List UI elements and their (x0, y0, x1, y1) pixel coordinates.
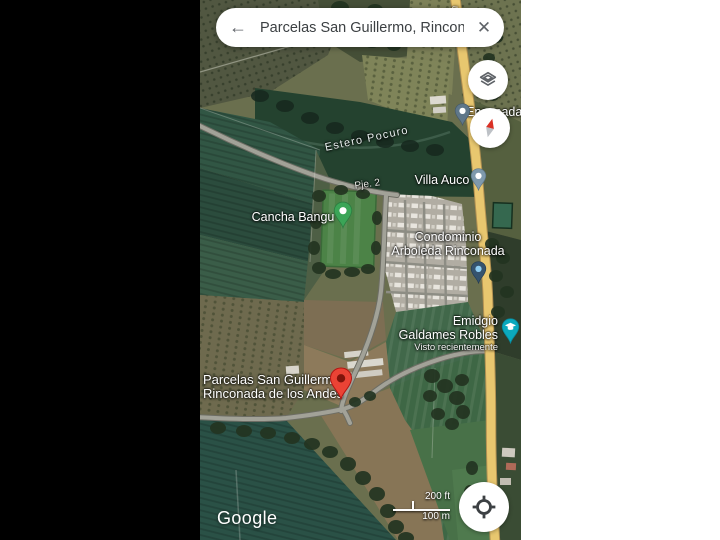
ensenada-pin[interactable] (454, 103, 471, 131)
map-label-condominio[interactable]: Condominio Arboleda Rinconada (388, 231, 508, 258)
search-query[interactable]: Parcelas San Guillermo, Rincon... (260, 20, 464, 36)
screen: Estero Pocuro Pje. 2 tín Villa Auco Canc… (0, 0, 720, 540)
destination-pin[interactable] (329, 367, 353, 405)
map-label-emidgio[interactable]: Emidgio Galdames Robles Visto recienteme… (388, 315, 498, 353)
map-viewport[interactable]: Estero Pocuro Pje. 2 tín Villa Auco Canc… (200, 0, 521, 540)
destination-line2: Rinconada de los Andes (203, 387, 327, 401)
map-label-destination[interactable]: Parcelas San Guillermo, Rinconada de los… (203, 373, 327, 401)
school-pin[interactable] (501, 318, 520, 349)
scale-imperial: 200 ft (425, 491, 450, 502)
condominio-line1: Condominio (388, 231, 508, 245)
condominio-saved-pin[interactable] (470, 261, 487, 289)
cancha-bangu-pin[interactable] (333, 201, 353, 234)
map-label-villa-auco[interactable]: Villa Auco (413, 174, 471, 188)
my-location-button[interactable] (459, 482, 509, 532)
villa-auco-pin[interactable] (470, 168, 487, 196)
compass-icon (478, 116, 502, 140)
destination-line1: Parcelas San Guillermo, (203, 373, 327, 387)
scale-bar: 200 ft 100 m (390, 491, 454, 527)
emidgio-line2: Galdames Robles (388, 329, 498, 343)
back-icon[interactable]: ← (216, 17, 260, 38)
letterbox-right (521, 0, 720, 540)
close-icon[interactable]: ✕ (464, 18, 504, 38)
compass-button[interactable] (470, 108, 510, 148)
my-location-icon (471, 494, 497, 520)
emidgio-note: Visto recientemente (388, 343, 498, 353)
layers-icon (477, 69, 499, 91)
search-bar[interactable]: ← Parcelas San Guillermo, Rincon... ✕ (216, 8, 504, 47)
scale-metric: 100 m (422, 511, 450, 522)
condominio-line2: Arboleda Rinconada (388, 245, 508, 259)
layers-button[interactable] (468, 60, 508, 100)
map-label-cancha-bangu[interactable]: Cancha Bangu (245, 211, 341, 225)
letterbox-left (0, 0, 200, 540)
emidgio-line1: Emidgio (388, 315, 498, 329)
google-logo: Google (217, 508, 277, 529)
